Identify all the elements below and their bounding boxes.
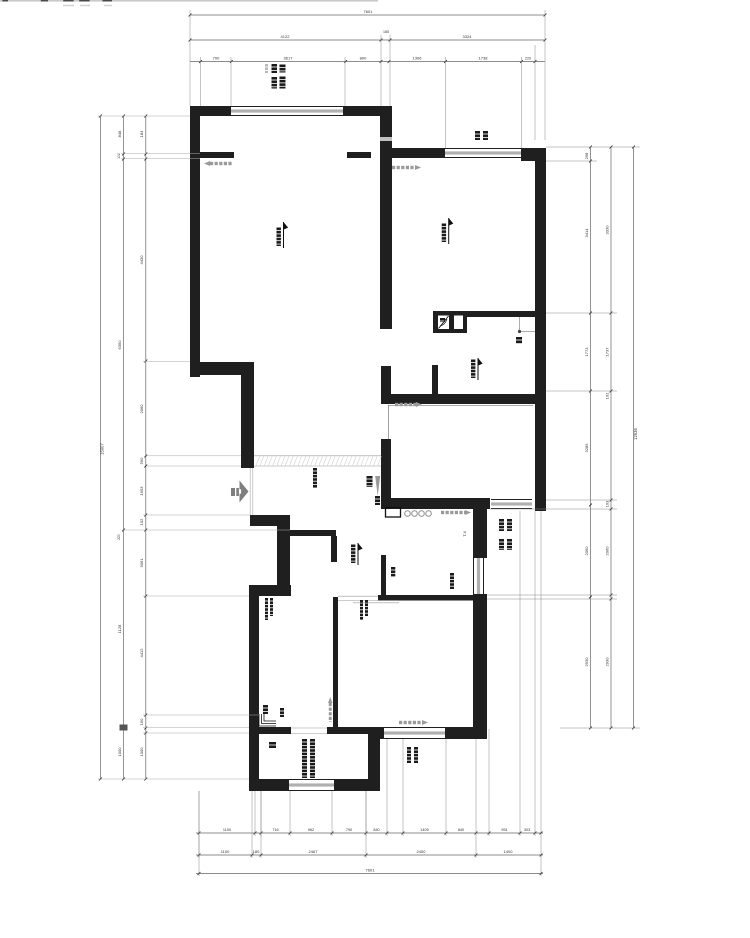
svg-text:103: 103 — [605, 500, 610, 507]
svg-text:1773: 1773 — [584, 347, 589, 357]
svg-text:6350: 6350 — [117, 340, 122, 350]
svg-text:1100: 1100 — [221, 849, 230, 854]
svg-text:840: 840 — [373, 828, 379, 832]
svg-text:220: 220 — [525, 57, 531, 61]
svg-text:15007: 15007 — [100, 443, 105, 455]
svg-text:716: 716 — [272, 828, 278, 832]
svg-text:2467: 2467 — [309, 849, 319, 854]
svg-text:180: 180 — [253, 849, 260, 854]
svg-text:3285: 3285 — [584, 443, 589, 453]
svg-text:303: 303 — [524, 828, 530, 832]
svg-text:4412: 4412 — [139, 648, 144, 658]
svg-text:3324: 3324 — [463, 34, 473, 39]
svg-text:800: 800 — [360, 56, 367, 61]
svg-text:1000: 1000 — [139, 747, 144, 757]
svg-text:790: 790 — [346, 828, 352, 832]
svg-text:220: 220 — [117, 534, 121, 540]
svg-text:590: 590 — [139, 457, 144, 464]
svg-text:102: 102 — [139, 518, 144, 525]
svg-text:T.4: T.4 — [462, 531, 467, 537]
svg-text:1306: 1306 — [413, 56, 423, 61]
svg-text:1903: 1903 — [139, 486, 144, 496]
svg-text:3330: 3330 — [605, 225, 610, 235]
svg-text:1000: 1000 — [117, 747, 122, 757]
svg-text:1738: 1738 — [479, 56, 489, 61]
svg-text:12636: 12636 — [633, 428, 638, 440]
svg-text:2400: 2400 — [417, 849, 427, 854]
svg-text:7601: 7601 — [364, 9, 374, 14]
svg-text:700: 700 — [213, 56, 220, 61]
svg-text:102: 102 — [605, 392, 610, 399]
svg-text:848: 848 — [117, 130, 122, 137]
svg-text:160: 160 — [139, 718, 144, 725]
svg-text:2930: 2930 — [584, 657, 589, 667]
svg-text:1737: 1737 — [605, 347, 610, 357]
svg-text:2930: 2930 — [605, 657, 610, 667]
svg-text:4430: 4430 — [139, 255, 144, 265]
svg-text:3617: 3617 — [284, 56, 294, 61]
svg-text:3414: 3414 — [584, 228, 589, 238]
svg-text:840: 840 — [458, 828, 464, 832]
svg-text:184: 184 — [139, 130, 144, 137]
svg-text:2060: 2060 — [584, 546, 589, 556]
svg-text:3061: 3061 — [139, 558, 144, 568]
svg-text:102: 102 — [117, 153, 121, 159]
svg-text:962: 962 — [308, 828, 314, 832]
svg-text:185: 185 — [383, 30, 389, 34]
svg-text:1128: 1128 — [117, 624, 122, 633]
svg-text:298: 298 — [584, 152, 589, 159]
svg-text:1400: 1400 — [504, 849, 514, 854]
svg-text:1405: 1405 — [420, 828, 428, 832]
svg-text:2060: 2060 — [605, 546, 610, 556]
svg-text:1100: 1100 — [223, 828, 231, 832]
svg-text:4122: 4122 — [281, 34, 291, 39]
svg-text:7601: 7601 — [366, 868, 376, 873]
svg-text:2060: 2060 — [139, 404, 144, 414]
svg-text:951: 951 — [501, 828, 507, 832]
